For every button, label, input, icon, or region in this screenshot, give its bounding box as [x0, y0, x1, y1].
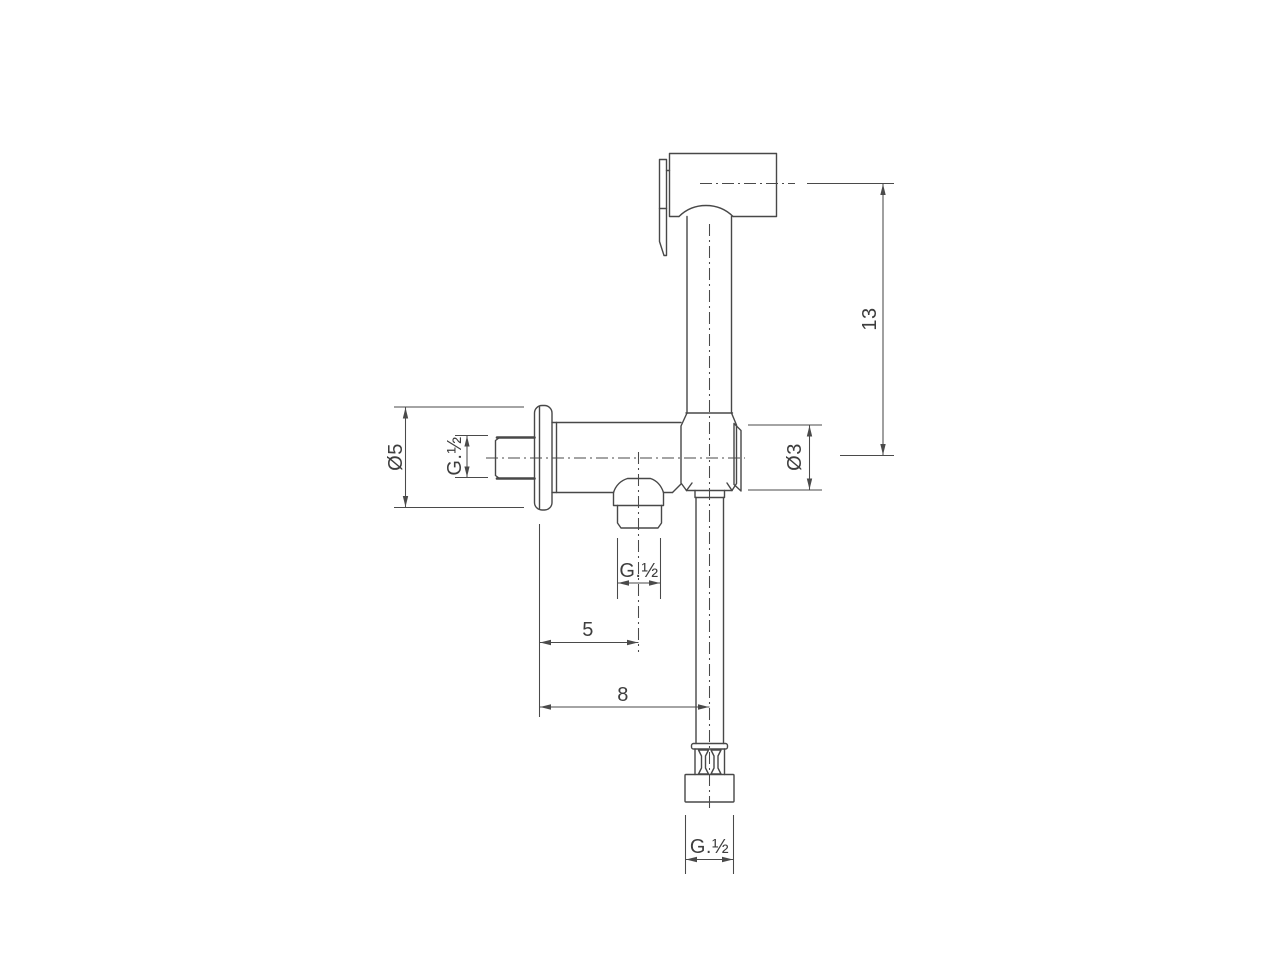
dim-arrow-right: [698, 704, 709, 709]
grip-section: [681, 413, 741, 498]
holder-bracket: [734, 424, 741, 492]
dim-arrow-right: [627, 640, 638, 645]
outlet-nut: [618, 506, 662, 529]
dim-label-grip-diameter: Ø3: [784, 443, 806, 471]
hose-crimp-spool-left: [699, 750, 709, 774]
dim-arrow-down: [403, 496, 408, 507]
spray-face-plate: [660, 160, 667, 256]
grip-corner-tick-left: [687, 483, 693, 491]
valve-body: [552, 423, 681, 493]
dim-label-total-height: 13: [859, 307, 881, 330]
dim-arrow-up: [807, 426, 812, 437]
valve-body-grip-fillet: [673, 484, 682, 493]
hose-crimp-spool-right: [711, 750, 721, 774]
dim-arrow-up: [880, 184, 885, 195]
dimension-hose-thread: G.½: [686, 815, 734, 874]
spray-head: [660, 154, 777, 256]
dim-arrow-up: [403, 408, 408, 419]
grip-left-edge: [681, 413, 687, 491]
dim-label-hose-thread: G.½: [690, 836, 729, 858]
grip-corner-tick-right: [727, 483, 732, 491]
dim-label-flange-diameter: Ø5: [385, 443, 407, 471]
dim-label-inlet-thread: G.½: [444, 436, 466, 475]
dim-label-outlet-thread: G.½: [619, 560, 658, 582]
dim-label-outlet-offset: 5: [582, 619, 594, 641]
dim-arrow-left: [540, 640, 551, 645]
dimension-total-height: 13: [807, 184, 894, 456]
dimension-hose-offset: 8: [540, 684, 710, 710]
dim-arrow-left: [540, 704, 551, 709]
drawing-page: Ø5 G.½ Ø3 13 5 8: [0, 0, 1280, 960]
dim-arrow-down: [880, 444, 885, 455]
dimension-grip-diameter: Ø3: [748, 425, 822, 490]
spray-head-body: [670, 154, 777, 217]
handle-neck-fillet: [679, 206, 733, 217]
technical-drawing: Ø5 G.½ Ø3 13 5 8: [0, 0, 1280, 960]
dim-label-hose-offset: 8: [617, 684, 629, 706]
dimension-inlet-thread: G.½: [444, 436, 488, 478]
dim-arrow-down: [807, 479, 812, 490]
centerlines: [486, 184, 795, 811]
